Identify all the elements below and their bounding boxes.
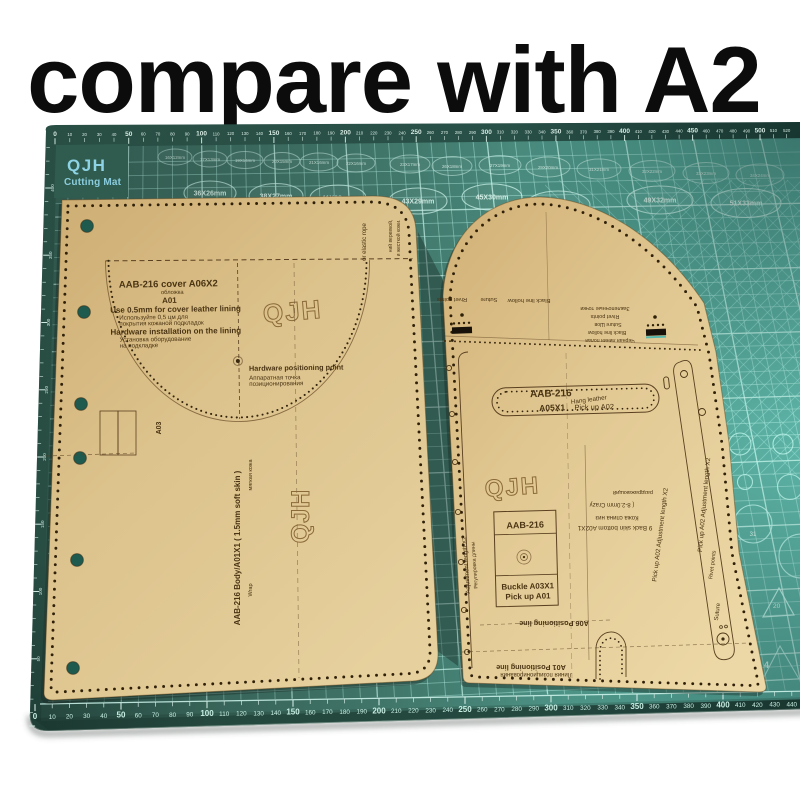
svg-text:240: 240: [443, 707, 454, 714]
svg-text:60: 60: [135, 712, 143, 719]
svg-text:440: 440: [787, 701, 798, 708]
svg-text:150: 150: [40, 520, 45, 528]
svg-text:Buckle A03X1: Buckle A03X1: [501, 581, 554, 591]
svg-text:200: 200: [340, 130, 351, 137]
svg-text:340: 340: [538, 130, 546, 135]
svg-text:290: 290: [469, 130, 477, 135]
svg-text:ний веревкой,: ний веревкой,: [387, 220, 394, 253]
svg-text:90: 90: [185, 131, 190, 136]
svg-text:70: 70: [152, 712, 160, 719]
svg-text:460: 460: [703, 129, 711, 134]
svg-text:480: 480: [730, 128, 738, 133]
svg-text:420: 420: [752, 702, 763, 709]
svg-text:170: 170: [299, 131, 307, 136]
svg-text:Pick up A01: Pick up A01: [505, 591, 551, 601]
svg-text:Black line hollow: Black line hollow: [507, 297, 551, 303]
svg-text:Hardware positioning point: Hardware positioning point: [249, 363, 344, 373]
svg-text:350: 350: [550, 128, 561, 135]
svg-text:490: 490: [743, 128, 751, 133]
svg-text:100: 100: [200, 709, 214, 718]
svg-text:390: 390: [607, 129, 615, 134]
svg-text:A03: A03: [156, 421, 163, 434]
svg-text:320: 320: [580, 705, 591, 712]
svg-text:A05X1: A05X1: [539, 402, 566, 413]
svg-text:250: 250: [411, 129, 422, 136]
svg-text:130: 130: [241, 131, 249, 136]
svg-text:300: 300: [46, 318, 51, 326]
svg-text:350: 350: [630, 702, 644, 711]
svg-text:240: 240: [399, 130, 407, 135]
svg-text:110: 110: [219, 711, 230, 718]
svg-text:120: 120: [236, 711, 247, 718]
svg-text:280: 280: [511, 706, 522, 713]
svg-text:20: 20: [82, 132, 87, 137]
svg-text:380: 380: [594, 129, 602, 134]
svg-text:120: 120: [227, 131, 235, 136]
svg-text:520: 520: [783, 128, 791, 133]
svg-text:310: 310: [563, 705, 574, 712]
svg-text:300: 300: [481, 129, 492, 136]
svg-text:200: 200: [372, 706, 386, 715]
svg-text:230: 230: [384, 130, 392, 135]
svg-text:430: 430: [662, 129, 670, 134]
svg-text:Cutting Mat: Cutting Mat: [64, 177, 122, 188]
svg-text:40: 40: [100, 713, 108, 720]
svg-text:310: 310: [497, 130, 505, 135]
svg-text:Кожа спина низ: Кожа спина низ: [595, 514, 638, 520]
svg-text:140: 140: [256, 131, 264, 136]
svg-text:370: 370: [666, 703, 677, 710]
svg-text:320: 320: [511, 130, 519, 135]
svg-text:50: 50: [117, 711, 126, 720]
svg-text:50: 50: [36, 656, 41, 662]
svg-text:220: 220: [370, 130, 378, 135]
svg-text:270: 270: [494, 706, 505, 713]
svg-text:220: 220: [408, 708, 419, 715]
svg-text:0: 0: [53, 131, 57, 138]
svg-text:180: 180: [313, 131, 321, 136]
svg-text:150: 150: [286, 708, 300, 717]
svg-text:40: 40: [112, 132, 117, 137]
svg-text:100: 100: [38, 587, 43, 595]
svg-text:80: 80: [170, 132, 175, 137]
svg-text:compare with A2: compare with A2: [27, 27, 761, 132]
svg-text:160: 160: [285, 131, 293, 136]
svg-text:Wrap: Wrap: [248, 583, 254, 596]
svg-text:QJH: QJH: [67, 156, 106, 175]
svg-text:30: 30: [97, 132, 102, 137]
svg-text:210: 210: [391, 708, 402, 715]
svg-text:150: 150: [268, 130, 279, 137]
svg-text:Rivet points: Rivet points: [590, 313, 619, 319]
svg-text:20: 20: [66, 714, 74, 721]
svg-text:A06 Positioning line: A06 Positioning line: [519, 619, 589, 628]
svg-text:AAB-216 Body/A01X1 ( 1.5mm s: AAB-216 Body/A01X1 ( 1.5mm soft skin ): [233, 470, 242, 625]
svg-text:400: 400: [716, 701, 730, 710]
svg-text:A01 Positioning line: A01 Positioning line: [496, 663, 566, 672]
svg-text:400: 400: [619, 128, 630, 135]
svg-text:60: 60: [141, 132, 146, 137]
svg-text:10: 10: [67, 132, 72, 137]
svg-text:90: 90: [186, 712, 194, 719]
svg-text:110: 110: [213, 131, 220, 136]
svg-text:160: 160: [305, 710, 316, 717]
svg-text:QJH: QJH: [287, 489, 315, 543]
svg-text:мягкая кожа: мягкая кожа: [248, 459, 254, 491]
svg-text:510: 510: [770, 128, 778, 133]
svg-text:260: 260: [427, 130, 435, 135]
svg-text:140: 140: [271, 710, 282, 717]
svg-text:9 Back skin bottom A02X1: 9 Back skin bottom A02X1: [577, 524, 652, 531]
svg-text:190: 190: [328, 131, 336, 136]
svg-text:80: 80: [169, 712, 177, 719]
svg-text:70: 70: [156, 132, 161, 137]
svg-text:370: 370: [580, 129, 588, 134]
svg-text:420: 420: [648, 129, 656, 134]
svg-text:AAB-216: AAB-216: [506, 520, 544, 531]
svg-text:360: 360: [566, 129, 574, 134]
svg-text:290: 290: [529, 706, 540, 713]
svg-text:470: 470: [716, 129, 724, 134]
svg-text:Rivet points: Rivet points: [437, 296, 467, 302]
svg-text:340: 340: [615, 704, 626, 711]
svg-text:330: 330: [525, 130, 533, 135]
svg-text:10: 10: [49, 714, 57, 721]
svg-text:300: 300: [544, 703, 558, 712]
svg-text:170: 170: [322, 709, 333, 716]
svg-text:AAB-216: AAB-216: [530, 388, 572, 400]
svg-text:380: 380: [683, 703, 694, 710]
svg-text:Suture: Suture: [480, 296, 497, 302]
svg-text:250: 250: [458, 705, 472, 714]
svg-text:430: 430: [769, 702, 780, 709]
svg-text:410: 410: [635, 129, 643, 134]
svg-text:440: 440: [676, 129, 684, 134]
svg-text:360: 360: [649, 704, 660, 711]
svg-text:410: 410: [735, 702, 746, 709]
svg-text:260: 260: [477, 707, 488, 714]
svg-text:A01: A01: [162, 296, 177, 305]
svg-text:на подкладке: на подкладке: [120, 342, 159, 350]
svg-text:230: 230: [425, 707, 436, 714]
svg-text:100: 100: [196, 130, 207, 137]
svg-text:и жесткой кожи.: и жесткой кожи.: [395, 220, 402, 257]
svg-text:or elastic rope: or elastic rope: [362, 222, 368, 260]
svg-text:280: 280: [455, 130, 463, 135]
svg-text:QJH: QJH: [484, 472, 541, 503]
svg-text:270: 270: [441, 130, 449, 135]
svg-text:раздражающий: раздражающий: [613, 489, 653, 496]
svg-text:Black line hollow: Black line hollow: [588, 329, 627, 335]
svg-text:AAB-216 cover A06X2: AAB-216 cover A06X2: [119, 278, 218, 290]
svg-text:390: 390: [701, 703, 712, 710]
svg-text:Pick up A02: Pick up A02: [574, 402, 614, 412]
svg-text:( 8-2.0mm Crazy: ( 8-2.0mm Crazy: [590, 501, 635, 507]
svg-text:Линия позиционирования: Линия позиционирования: [500, 671, 571, 677]
svg-text:250: 250: [44, 386, 49, 394]
svg-text:450: 450: [687, 128, 698, 135]
svg-text:30: 30: [83, 713, 91, 720]
svg-text:210: 210: [356, 131, 364, 136]
svg-text:Suture Шов: Suture Шов: [594, 321, 621, 327]
svg-text:180: 180: [339, 709, 350, 716]
svg-text:0: 0: [33, 712, 38, 721]
svg-text:190: 190: [357, 709, 368, 716]
svg-text:200: 200: [42, 453, 47, 461]
svg-text:130: 130: [253, 710, 264, 717]
svg-text:QJH: QJH: [262, 294, 324, 329]
svg-text:330: 330: [597, 705, 608, 712]
svg-text:Заклепочные точки: Заклепочные точки: [580, 305, 629, 311]
svg-text:50: 50: [125, 131, 133, 138]
svg-text:350: 350: [48, 251, 53, 259]
svg-text:500: 500: [755, 127, 766, 134]
